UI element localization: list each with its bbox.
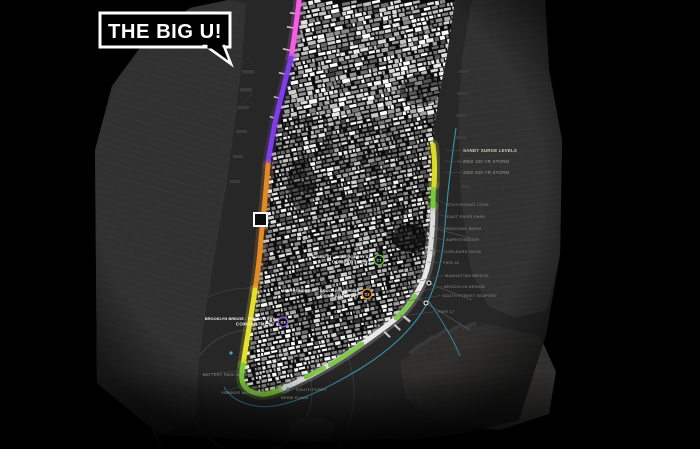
logo-text: THE BIG U! xyxy=(108,21,222,43)
compartment-label: COMPARTMENT xyxy=(236,322,275,327)
map-label: CORLEARS HOOK xyxy=(444,249,482,254)
map-label: PIER 42 xyxy=(443,260,460,265)
compartment-label: COMPARTMENT xyxy=(332,260,371,265)
map-label: EAST RIVER PARK xyxy=(447,214,486,219)
compartment-name: BROOKLYN BRIDGE - THE BATTERY xyxy=(205,316,276,321)
map-label: STUYVESANT COVE xyxy=(447,202,489,207)
map-label: BATTERY PARK BERM xyxy=(203,372,249,377)
big-u-map: STUYVESANT COVEEAST RIVER PARKBRIDGING B… xyxy=(0,0,700,449)
surge-label: SANDY SURGE LEVELS xyxy=(463,148,517,153)
map-label: SOUTH STREET SEAPORT xyxy=(442,293,497,298)
compartment-name: MONTGOMERY ST - BROOKLYN BRIDGE xyxy=(281,288,360,293)
bottom-fade xyxy=(90,372,570,449)
map-label: MANHATTAN BRIDGE xyxy=(445,273,489,278)
compartment-name: E 23RD ST - MONTGOMERY ST xyxy=(312,254,372,259)
compartment-label: COMPARTMENT xyxy=(320,294,359,299)
map-label: HARBOR MUSEUM xyxy=(222,390,261,395)
big-u-poster: { "logo": { "text": "THE BIG U!" }, "col… xyxy=(0,0,700,449)
map-label: PIER 17 xyxy=(438,309,455,314)
map-label: BROOKLYN BRIDGE xyxy=(444,284,486,289)
compartment-badge-id: C2 xyxy=(364,292,370,297)
compartment-badge-id: C3 xyxy=(280,320,286,325)
map-label: AMPHITHEATER xyxy=(446,237,479,242)
map-label: SOUTH FERRY xyxy=(296,387,327,392)
surge-label: 2050 500-YR STORM xyxy=(463,170,509,175)
surge-label: 2050 100-YR STORM xyxy=(463,159,509,164)
map-label: BERM PLAZA xyxy=(281,395,308,400)
compartment-badge-id: C1 xyxy=(376,258,382,263)
map-label: BRIDGING BERM xyxy=(446,226,481,231)
